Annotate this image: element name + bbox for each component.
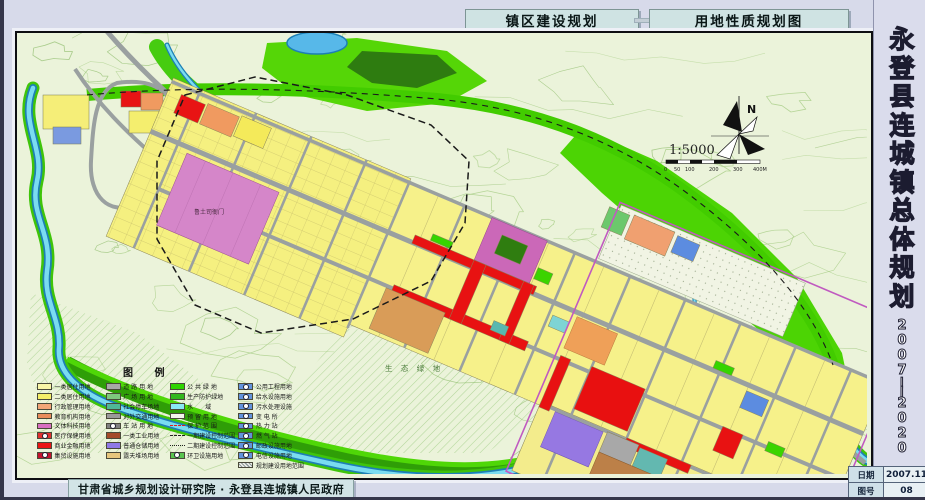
legend-label: 二期建设控制范围 [187,441,235,450]
vertical-title-char: 镇 [874,169,925,198]
legend-swatch-icon [243,443,249,449]
title-block-sidebar: 永登县连城镇总体规划 2007——2020 [873,0,925,500]
legend-swatch [106,383,121,390]
legend-item: 露天堆场用地 [106,450,167,460]
title-landuse-map: 用地性质规划图 [649,9,849,30]
info-row-date: 日期 2007.11 [849,467,925,482]
legend: 图 例 一类居住用地二类居住用地行政管理用地教育机构用地文体科技用地医疗保健用地… [37,364,309,470]
legend-label: 环卫设施用地 [187,451,223,460]
sheet-period: 2007——2020 [874,318,925,456]
legend-item: 保 护 范 围 [170,421,236,431]
legend-label: 一期建设控制范围 [187,431,235,440]
scale-tick: 0 [664,167,667,173]
scale-tick: 50 [674,167,680,173]
legend-item: 生产防护绿地 [170,392,236,402]
legend-item: 一类居住用地 [37,382,103,392]
legend-swatch-icon [42,433,48,439]
sheetno-value: 08 [884,483,925,498]
legend-swatch [238,393,253,400]
legend-swatch-icon [42,452,48,458]
scale-text: 1:5000 [669,143,715,158]
legend-swatch [37,442,52,449]
info-row-sheetno: 图号 08 [849,482,925,498]
legend-swatch [238,462,253,469]
legend-swatch [170,393,185,400]
legend-item: 二期建设控制范围 [170,441,236,451]
legend-label: 广 场 用 地 [123,392,153,401]
legend-label: 水 域 [187,402,211,411]
legend-label: 车 站 用 地 [123,421,153,430]
legend-label: 燃 气 站 [256,431,278,440]
legend-label: 二类居住用地 [55,392,91,401]
legend-title: 图 例 [123,364,309,379]
legend-swatch-icon [174,452,180,458]
legend-swatch-icon [110,423,116,429]
yamen-label: 鲁土司衙门 [194,208,224,216]
legend-item: 文体科技用地 [37,421,103,431]
legend-item: 给水设施用地 [238,392,309,402]
date-label: 日期 [849,467,884,482]
org-bar: 甘肃省城乡规划设计研究院 · 永登县连城镇人民政府 [68,479,354,499]
vertical-title-char: 登 [874,55,925,84]
legend-label: 道 路 用 地 [123,382,153,391]
legend-item: 电信设施用地 [238,450,309,460]
legend-swatch [106,413,121,420]
legend-columns: 一类居住用地二类居住用地行政管理用地教育机构用地文体科技用地医疗保健用地商业金融… [37,382,309,470]
legend-item: 一类工业用地 [106,431,167,441]
sheet-vertical-title: 永登县连城镇总体规划 [874,26,925,311]
title-left-text: 镇区建设规划 [506,10,599,30]
legend-swatch [106,442,121,449]
legend-swatch-icon [243,413,249,419]
legend-swatch [37,403,52,410]
legend-item: 医疗保健用地 [37,431,103,441]
legend-item: 广 场 用 地 [106,392,167,402]
legend-swatch [170,383,185,390]
legend-swatch [37,393,52,400]
legend-column: 道 路 用 地广 场 用 地社会停车场地对外交通用地车 站 用 地一类工业用地普… [106,382,167,470]
scale-tick: 200 [709,167,719,173]
legend-swatch [106,432,121,439]
legend-column: 一类居住用地二类居住用地行政管理用地教育机构用地文体科技用地医疗保健用地商业金融… [37,382,103,470]
legend-swatch [170,435,185,436]
legend-item: 商业金融用地 [37,441,103,451]
legend-item: 变 电 所 [238,411,309,421]
north-label: N [747,103,756,116]
legend-item: 公用工程用地 [238,382,309,392]
legend-label: 给水设施用地 [256,392,292,401]
legend-item: 环卫设施用地 [170,450,236,460]
legend-item: 教育机构用地 [37,411,103,421]
legend-item: 普通仓储用地 [106,441,167,451]
vertical-title-char: 城 [874,140,925,169]
legend-label: 预 留 用 地 [187,412,217,421]
legend-item: 邮政设施用地 [238,441,309,451]
legend-swatch [170,452,185,459]
period-char: 2 [874,426,925,441]
legend-label: 邮政设施用地 [256,441,292,450]
legend-label: 变 电 所 [256,412,278,421]
period-char: 0 [874,333,925,348]
legend-swatch [170,413,185,420]
legend-label: 对外交通用地 [123,412,159,421]
legend-label: 公用工程用地 [256,382,292,391]
legend-swatch [37,413,52,420]
legend-column: 公用工程用地给水设施用地污水处理设施变 电 所热 力 站燃 气 站邮政设施用地电… [238,382,309,470]
vertical-title-char: 规 [874,254,925,283]
legend-swatch [238,403,253,410]
vertical-title-char: 划 [874,283,925,312]
legend-swatch [106,393,121,400]
legend-swatch [106,403,121,410]
legend-item: 集贸设施用地 [37,450,103,460]
eco-label: 生 态 绿 地 [385,363,443,373]
legend-label: 普通仓储用地 [123,441,159,450]
legend-label: 污水处理设施 [256,402,292,411]
legend-label: 文体科技用地 [55,421,91,430]
legend-item: 社会停车场地 [106,401,167,411]
legend-swatch [238,413,253,420]
legend-label: 电信设施用地 [256,451,292,460]
period-dash: — [898,364,907,420]
legend-swatch [37,383,52,390]
sheet-info-table: 日期 2007.11 图号 08 [848,466,925,499]
date-value: 2007.11 [884,467,925,482]
vertical-title-char: 体 [874,226,925,255]
legend-label: 热 力 站 [256,421,278,430]
legend-swatch [106,423,121,430]
legend-swatch [238,452,253,459]
legend-swatch-icon [243,452,249,458]
scale-tick: 400M [753,167,767,173]
legend-item: 公 共 绿 地 [170,382,236,392]
legend-label: 一类工业用地 [123,431,159,440]
scale-tick: 100 [685,167,695,173]
vertical-title-char: 连 [874,112,925,141]
legend-swatch [37,452,52,459]
legend-swatch-icon [243,403,249,409]
legend-item: 水 域 [170,401,236,411]
legend-swatch-icon [243,384,249,390]
legend-swatch [238,423,253,430]
period-char: 2 [874,318,925,333]
legend-swatch-icon [243,433,249,439]
title-construction-plan: 镇区建设规划 [465,9,639,30]
vertical-title-char: 总 [874,197,925,226]
legend-item: 燃 气 站 [238,431,309,441]
legend-label: 集贸设施用地 [55,451,91,460]
legend-label: 行政管理用地 [55,402,91,411]
map-frame: N 1:5000 0 50 100 200 300 400M 鲁土司衙 [15,31,873,480]
legend-swatch [238,432,253,439]
legend-item: 对外交通用地 [106,411,167,421]
legend-item: 一期建设控制范围 [170,431,236,441]
legend-item: 二类居住用地 [37,392,103,402]
legend-swatch [37,423,52,430]
legend-label: 公 共 绿 地 [187,382,217,391]
org-text: 甘肃省城乡规划设计研究院 · 永登县连城镇人民政府 [78,481,344,497]
legend-label: 生产防护绿地 [187,392,223,401]
legend-item: 预 留 用 地 [170,411,236,421]
legend-item: 车 站 用 地 [106,421,167,431]
legend-item: 热 力 站 [238,421,309,431]
legend-label: 教育机构用地 [55,412,91,421]
vertical-title-char: 县 [874,83,925,112]
legend-label: 保 护 范 围 [187,421,217,430]
legend-label: 商业金融用地 [55,441,91,450]
legend-swatch [37,432,52,439]
legend-swatch [170,425,185,426]
legend-item: 污水处理设施 [238,401,309,411]
scale-tick: 300 [733,167,743,173]
vertical-title-char: 永 [874,26,925,55]
legend-label: 露天堆场用地 [123,451,159,460]
legend-column: 公 共 绿 地生产防护绿地水 域预 留 用 地保 护 范 围一期建设控制范围二期… [170,382,236,470]
legend-item: 规划建设用地范围 [238,460,309,470]
legend-swatch [238,383,253,390]
title-right-text: 用地性质规划图 [695,10,804,30]
legend-label: 医疗保健用地 [55,431,91,440]
plan-sheet: 镇区建设规划 用地性质规划图 [0,0,925,500]
legend-swatch-icon [243,394,249,400]
legend-swatch [106,452,121,459]
legend-item: 行政管理用地 [37,401,103,411]
legend-swatch [170,445,185,446]
legend-item: 道 路 用 地 [106,382,167,392]
legend-label: 一类居住用地 [55,382,91,391]
sheetno-label: 图号 [849,483,884,498]
legend-label: 规划建设用地范围 [256,461,304,470]
period-char: 0 [874,441,925,456]
legend-swatch-icon [243,423,249,429]
legend-swatch [170,403,185,410]
legend-label: 社会停车场地 [123,402,159,411]
legend-swatch [238,442,253,449]
